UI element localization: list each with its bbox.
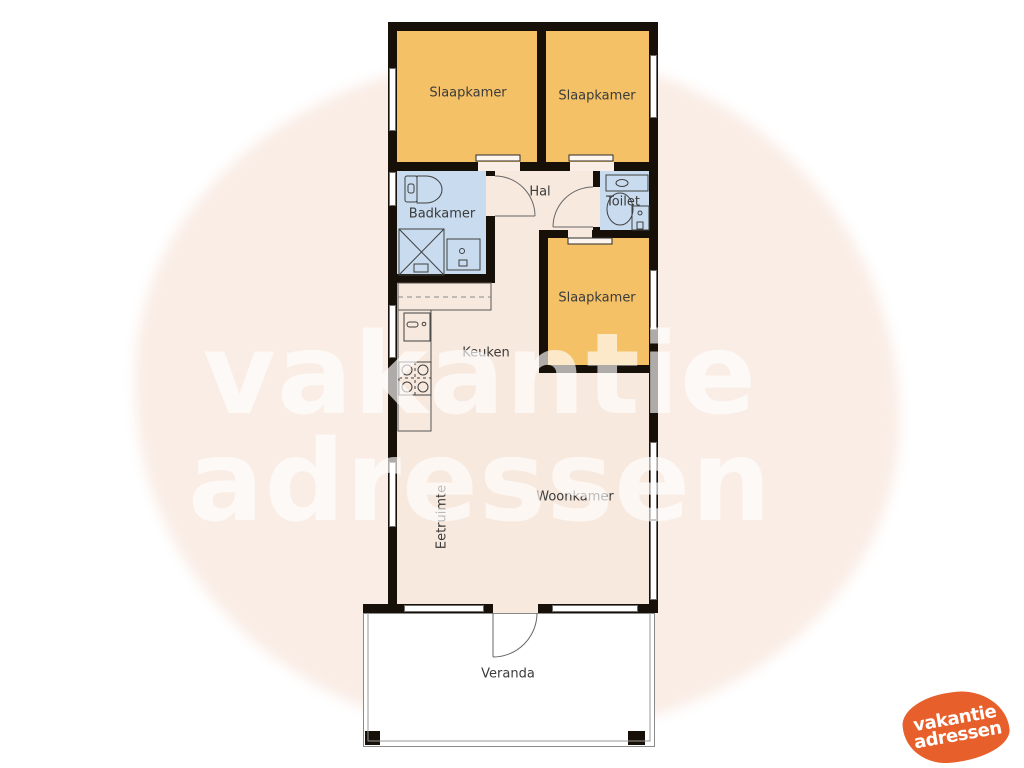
window-dining-left	[389, 462, 396, 527]
wall-bedroom-divider	[537, 22, 546, 171]
window-living-right-lower	[650, 520, 657, 600]
veranda-post-right	[628, 731, 645, 745]
label-veranda: Veranda	[481, 667, 535, 682]
window-bedroom2-right	[650, 55, 657, 118]
wall-bedrooms-bottom-b	[520, 162, 570, 171]
brand-logo-text: vakantie adressen	[909, 702, 1002, 751]
window-living-right-upper	[650, 442, 657, 520]
wall-bathroom-bottom	[388, 274, 495, 283]
label-bedroom-3: Slaapkamer	[558, 291, 635, 306]
page: { "floorplan": { "rooms": { "bedroom1": …	[0, 0, 1024, 768]
wall-bedrooms-bottom-c	[614, 162, 658, 171]
wall-top	[388, 22, 658, 31]
label-bathroom: Badkamer	[409, 207, 475, 222]
wall-bedroom3-bottom	[539, 365, 658, 373]
window-bottom-left	[404, 605, 484, 612]
brand-logo: vakantie adressen	[900, 687, 1013, 768]
label-kitchen: Keuken	[462, 346, 509, 361]
label-bedroom-2: Slaapkamer	[558, 89, 635, 104]
label-hall: Hal	[529, 185, 550, 200]
wall-bedroom3-top-b	[592, 230, 658, 238]
wall-bathroom-right-top	[486, 171, 495, 176]
window-bedroom3-right	[650, 270, 657, 330]
window-bedroom1-left	[389, 68, 396, 131]
label-toilet: Toilet	[606, 195, 640, 210]
wall-bedrooms-bottom-a	[388, 162, 478, 171]
wall-bathroom-right-bottom	[486, 216, 495, 283]
label-bedroom-1: Slaapkamer	[429, 86, 506, 101]
window-bottom-right	[552, 605, 638, 612]
room-bathroom	[397, 171, 486, 274]
veranda-door-opening	[493, 604, 538, 613]
window-bathroom-left	[389, 172, 396, 206]
wall-toilet-left-top	[593, 171, 600, 187]
wall-bedroom3-left	[539, 230, 548, 373]
label-living: Woonkamer	[536, 490, 614, 505]
veranda-post-left	[365, 731, 380, 745]
label-dining: Eetruimte	[435, 485, 450, 549]
window-kitchen-left	[389, 305, 396, 358]
